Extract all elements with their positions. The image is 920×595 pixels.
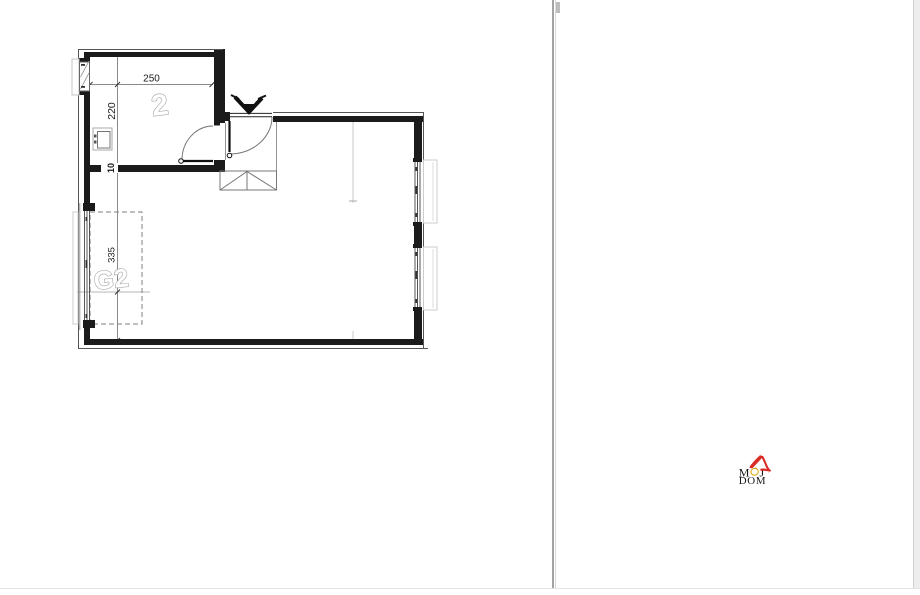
dim-wall-label: 10 bbox=[106, 163, 116, 173]
pane-divider-shadow bbox=[555, 0, 556, 588]
window-symbol-left-bottom bbox=[73, 211, 90, 324]
sink-symbol bbox=[93, 128, 112, 150]
entrance-arrow-icon bbox=[231, 95, 266, 114]
pane-divider bbox=[552, 0, 554, 588]
divider-scroll-thumb[interactable] bbox=[556, 2, 560, 13]
window-dimension-marks bbox=[416, 252, 418, 303]
page: 250 220 335 10 2 G2 M J DOM bbox=[0, 0, 920, 595]
entry-steps-symbol bbox=[220, 171, 277, 190]
door-swing-symbol-entrance bbox=[227, 113, 272, 157]
window-dimension-marks bbox=[416, 167, 418, 217]
dim-width-label: 250 bbox=[143, 74, 160, 85]
logo-text-dom: DOM bbox=[739, 475, 766, 487]
dim-garage-length-label: 335 bbox=[107, 247, 118, 263]
window-symbol-left-top bbox=[72, 59, 90, 95]
room-number-label: 2 bbox=[150, 88, 171, 123]
garage-area-label: G2 bbox=[92, 262, 130, 295]
door-swing-symbol-room2 bbox=[179, 126, 213, 163]
logo-art: M J DOM bbox=[738, 428, 916, 594]
window-symbol-right-bottom bbox=[415, 247, 437, 310]
logo: M J DOM bbox=[738, 428, 916, 594]
logo-o-ring-icon bbox=[750, 468, 759, 476]
floor-plan: 250 220 335 10 2 G2 bbox=[0, 0, 560, 595]
walls bbox=[78, 49, 428, 349]
construction-lines bbox=[77, 116, 357, 344]
window-symbol-right-top bbox=[415, 160, 437, 223]
dim-height-label: 220 bbox=[106, 102, 118, 120]
